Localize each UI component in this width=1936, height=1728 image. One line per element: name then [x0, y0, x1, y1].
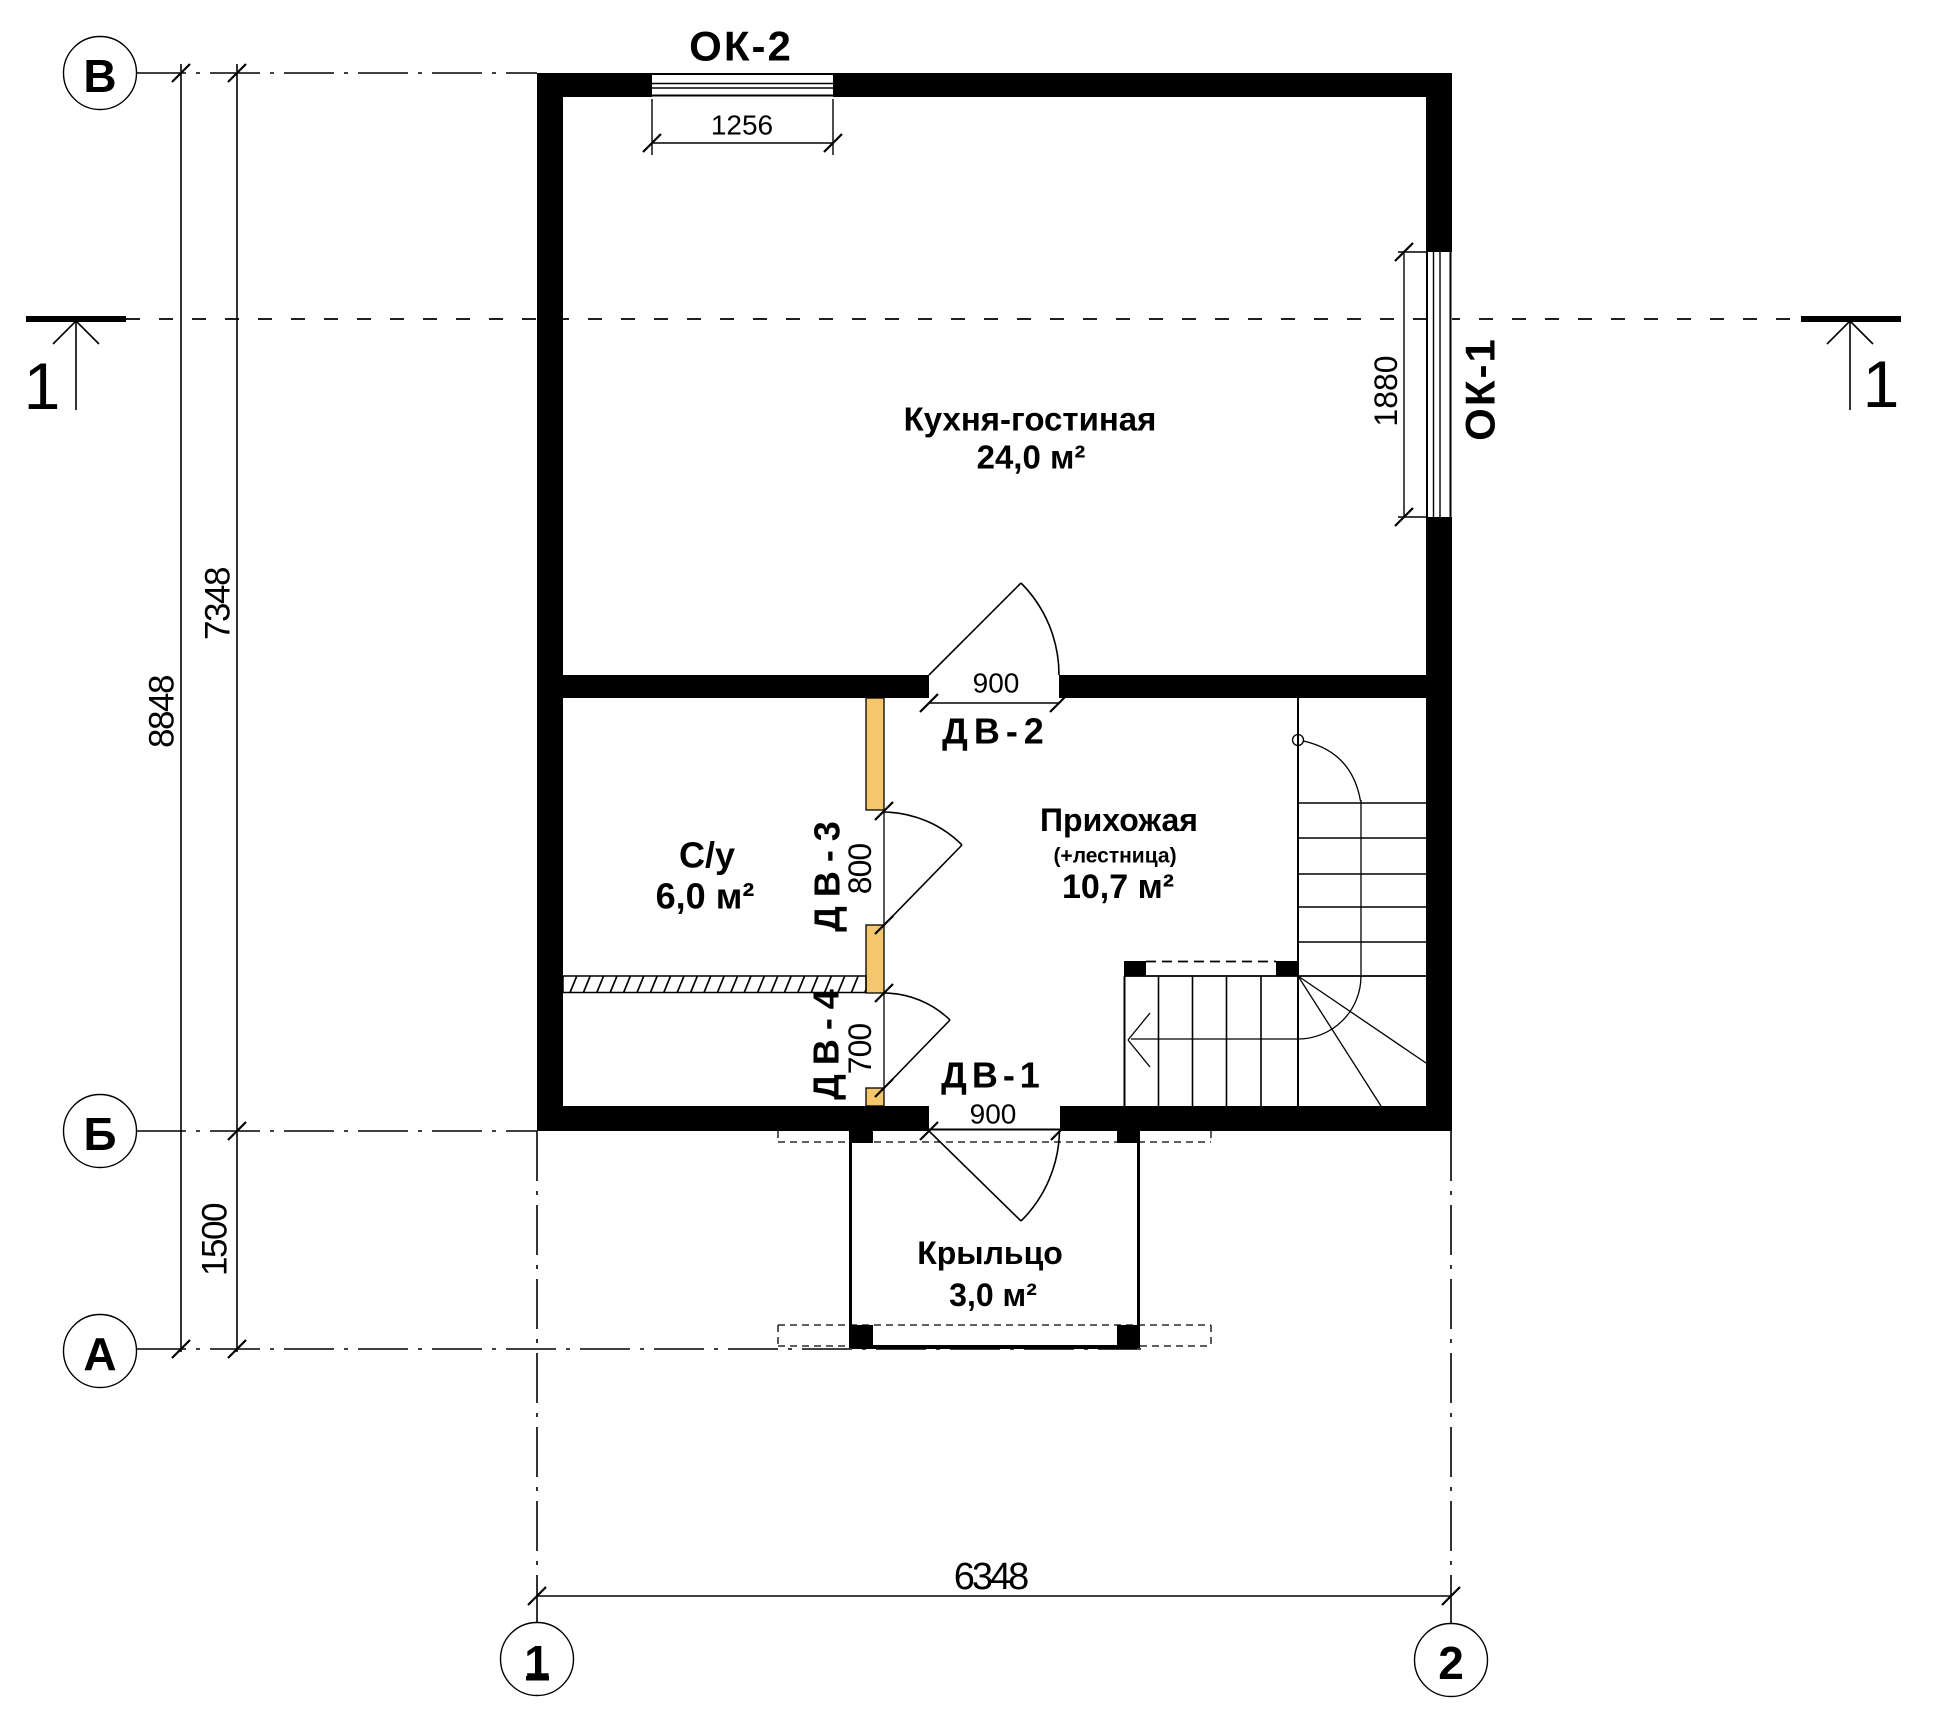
svg-text:ОК-1: ОК-1 [1457, 337, 1504, 441]
svg-text:700: 700 [842, 1024, 878, 1075]
svg-text:ДВ-1: ДВ-1 [941, 1055, 1045, 1096]
svg-text:1: 1 [1863, 347, 1900, 421]
svg-text:1256: 1256 [711, 110, 773, 141]
svg-text:1: 1 [24, 349, 61, 423]
svg-text:6348: 6348 [954, 1556, 1028, 1598]
svg-text:24,0 м²: 24,0 м² [977, 439, 1086, 476]
svg-text:7348: 7348 [199, 568, 238, 640]
svg-text:Крыльцо: Крыльцо [917, 1235, 1063, 1271]
svg-text:ДВ-3: ДВ-3 [807, 812, 848, 932]
svg-text:900: 900 [973, 668, 1020, 699]
svg-text:ДВ-4: ДВ-4 [806, 980, 847, 1100]
svg-text:900: 900 [970, 1099, 1017, 1130]
svg-text:10,7 м²: 10,7 м² [1062, 868, 1174, 906]
svg-text:Прихожая: Прихожая [1040, 802, 1198, 838]
svg-text:1500: 1500 [196, 1203, 235, 1276]
svg-text:С/у: С/у [679, 835, 735, 876]
svg-text:Кухня-гостиная: Кухня-гостиная [904, 401, 1157, 438]
svg-text:3,0 м²: 3,0 м² [949, 1277, 1037, 1313]
svg-text:6,0 м²: 6,0 м² [656, 876, 755, 917]
svg-text:В: В [83, 50, 116, 102]
svg-text:Б: Б [83, 1108, 116, 1160]
svg-text:(+лестница): (+лестница) [1053, 845, 1176, 868]
svg-text:ОК-2: ОК-2 [689, 23, 793, 70]
svg-text:ДВ-2: ДВ-2 [942, 711, 1050, 752]
svg-text:1880: 1880 [1368, 355, 1404, 426]
svg-text:2: 2 [1438, 1637, 1464, 1689]
svg-text:8848: 8848 [143, 676, 182, 748]
svg-text:А: А [83, 1328, 116, 1380]
